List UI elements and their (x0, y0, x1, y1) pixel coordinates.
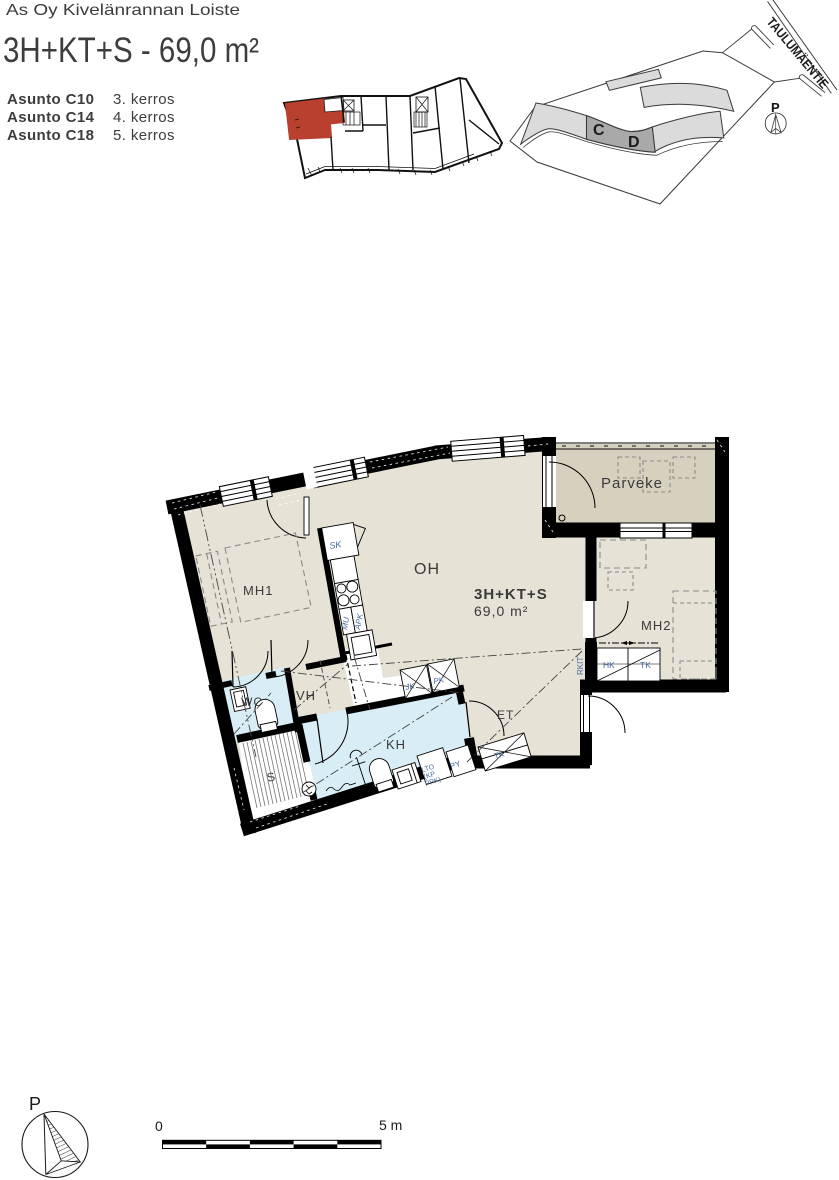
svg-text:WC: WC (241, 695, 263, 709)
svg-text:Asunto C10: Asunto C10 (7, 91, 94, 108)
svg-text:P: P (29, 1094, 41, 1114)
svg-text:TAULUMÄENTIE: TAULUMÄENTIE (764, 14, 832, 91)
svg-text:5. kerros: 5. kerros (113, 127, 175, 144)
svg-text:0: 0 (155, 1118, 163, 1134)
svg-text:5 m: 5 m (379, 1117, 402, 1133)
svg-text:MH1: MH1 (243, 583, 273, 598)
svg-text:KH: KH (386, 737, 406, 752)
svg-text:D: D (628, 134, 640, 151)
svg-text:Asunto C14: Asunto C14 (7, 109, 95, 126)
svg-text:3. kerros: 3. kerros (113, 91, 175, 108)
svg-text:ET: ET (497, 708, 514, 722)
svg-text:OH: OH (414, 561, 440, 578)
svg-text:C: C (593, 122, 605, 139)
svg-text:HK: HK (603, 660, 615, 670)
svg-text:MH2: MH2 (641, 618, 671, 633)
svg-text:Asunto C18: Asunto C18 (7, 127, 94, 144)
svg-text:VH: VH (296, 688, 316, 703)
svg-text:4. kerros: 4. kerros (113, 109, 175, 126)
svg-text:As Oy Kivelänrannan Loiste: As Oy Kivelänrannan Loiste (6, 2, 240, 19)
svg-text:RKIT: RKIT (576, 657, 585, 675)
svg-text:Parveke: Parveke (601, 475, 663, 492)
svg-text:69,0 m²: 69,0 m² (474, 603, 528, 619)
svg-text:3H+KT+S: 3H+KT+S (474, 586, 548, 603)
svg-text:3H+KT+S - 69,0 m²: 3H+KT+S - 69,0 m² (3, 31, 259, 70)
svg-text:TK: TK (640, 660, 651, 670)
